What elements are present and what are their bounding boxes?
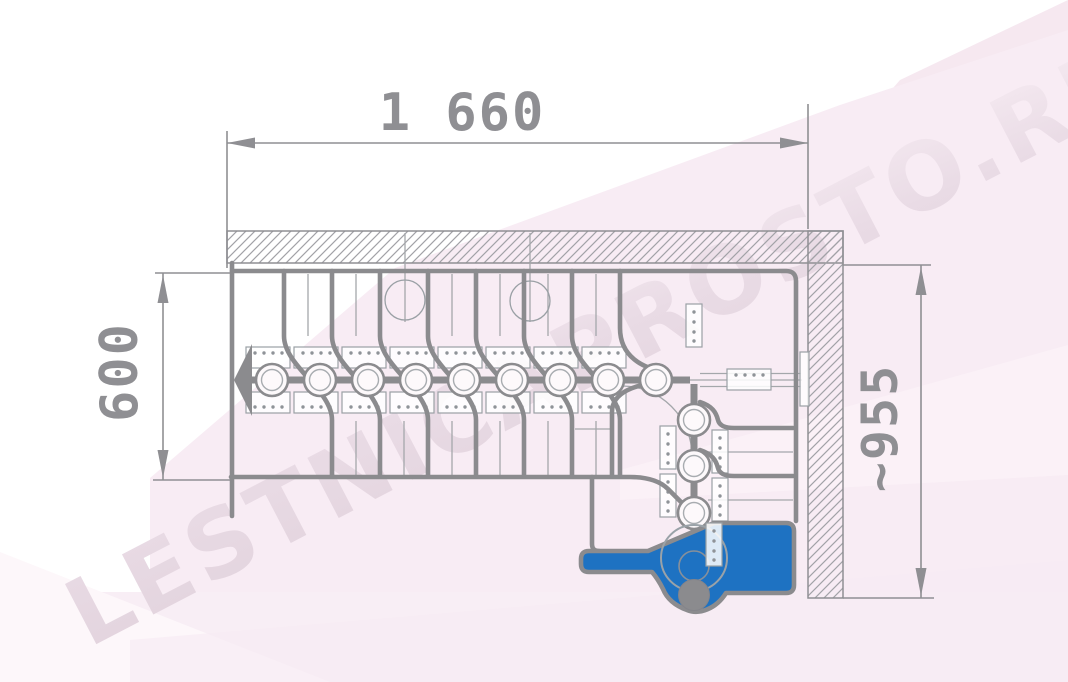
- top-wall: [227, 231, 843, 263]
- right-wall: [808, 231, 843, 598]
- dim-turn-depth: ~955: [851, 364, 909, 492]
- plan-canvas: LESTNICAPROSTO.RU: [0, 0, 1068, 682]
- support-post: [679, 580, 710, 611]
- wall-bracket-plate: [800, 352, 809, 406]
- dim-flight-width: 600: [90, 322, 150, 422]
- dim-total-length: 1 660: [379, 83, 546, 143]
- staircase-plan-drawing: LESTNICAPROSTO.RU: [0, 0, 1068, 682]
